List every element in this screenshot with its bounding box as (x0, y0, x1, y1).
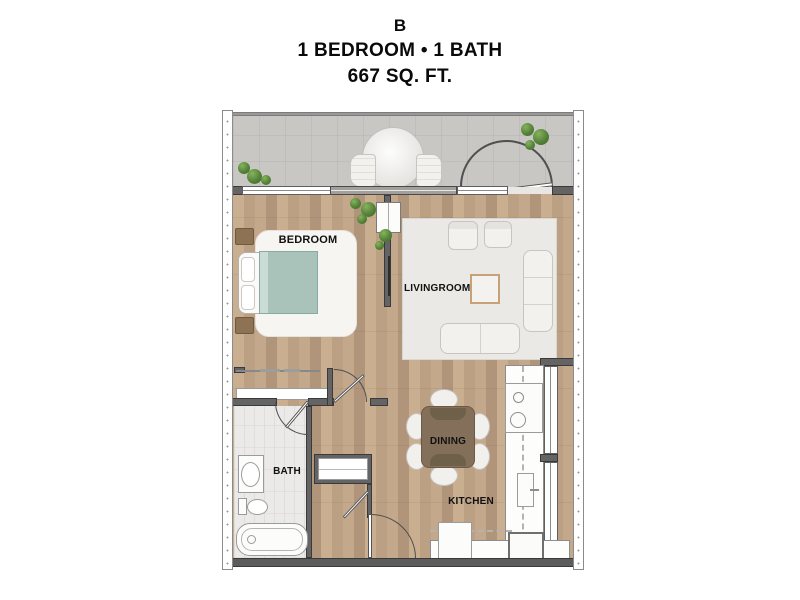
nightstand-icon (235, 317, 254, 334)
exterior-wall-right (573, 110, 584, 570)
wall (540, 358, 574, 366)
living-window (457, 186, 508, 195)
burner-icon (510, 412, 526, 428)
bed-icon (259, 251, 318, 314)
wall (367, 484, 372, 518)
wall (370, 398, 388, 406)
beds-baths-title: 1 BEDROOM • 1 BATH (0, 38, 800, 64)
armchair-icon (448, 221, 478, 250)
plant-icon (379, 229, 392, 242)
patio-chair-icon (350, 154, 376, 187)
sliding-glass-door (330, 186, 457, 195)
tv-icon (388, 256, 390, 296)
title-block: B 1 BEDROOM • 1 BATH 667 SQ. FT. (0, 14, 800, 90)
patio-chair-icon (416, 154, 442, 187)
range-icon (505, 383, 543, 433)
wall (552, 186, 574, 195)
plant-icon (521, 123, 534, 136)
burner-icon (513, 392, 524, 403)
floorplan-page: B 1 BEDROOM • 1 BATH 667 SQ. FT. BE (0, 0, 800, 600)
armchair-icon (484, 221, 512, 248)
toilet-bowl-icon (247, 499, 268, 515)
livingroom-label: LIVINGROOM (404, 283, 482, 294)
linen-closet (318, 458, 368, 480)
faucet-icon (530, 489, 539, 491)
media-cabinet-icon (376, 202, 401, 233)
exterior-wall-left (222, 110, 233, 570)
bathtub-icon (236, 523, 308, 556)
plant-icon (261, 175, 271, 185)
kitchen-window (544, 366, 558, 454)
bed-pillow (241, 257, 255, 282)
plant-icon (533, 129, 549, 145)
area-title: 667 SQ. FT. (0, 64, 800, 90)
bed-pillow (241, 285, 255, 310)
kitchen-door-leaf (368, 514, 372, 558)
dining-seat-back (430, 408, 466, 420)
bedroom-label: BEDROOM (258, 234, 358, 246)
dishwasher-icon (438, 522, 472, 560)
sink-basin-icon (241, 462, 260, 487)
toilet-tank-icon (238, 498, 247, 515)
plant-icon (375, 241, 384, 250)
dining-seat-back (430, 454, 466, 466)
plant-icon (525, 140, 535, 150)
closet-hanger (260, 369, 280, 372)
tub-drain-icon (247, 535, 256, 544)
wall (232, 398, 277, 406)
plant-icon (247, 169, 262, 184)
bedroom-window (242, 186, 331, 195)
plant-icon (357, 214, 367, 224)
refrigerator-icon (508, 532, 544, 560)
floorplan: BEDROOM LIVINGROOM (222, 110, 584, 572)
entry-opening (508, 187, 553, 194)
dining-label: DINING (421, 436, 475, 447)
loveseat-icon (440, 323, 520, 354)
plant-icon (350, 198, 361, 209)
bath-label: BATH (262, 466, 312, 477)
kitchen-sink-icon (517, 473, 534, 507)
dining-chair-icon (430, 465, 458, 486)
exterior-wall-bottom (232, 558, 574, 567)
nightstand-icon (235, 228, 254, 245)
wall (540, 454, 558, 462)
plan-letter: B (0, 14, 800, 38)
closet-hanger (284, 369, 300, 372)
balcony-edge (232, 112, 574, 116)
kitchen-label: KITCHEN (436, 496, 506, 507)
sofa-icon (523, 250, 553, 332)
